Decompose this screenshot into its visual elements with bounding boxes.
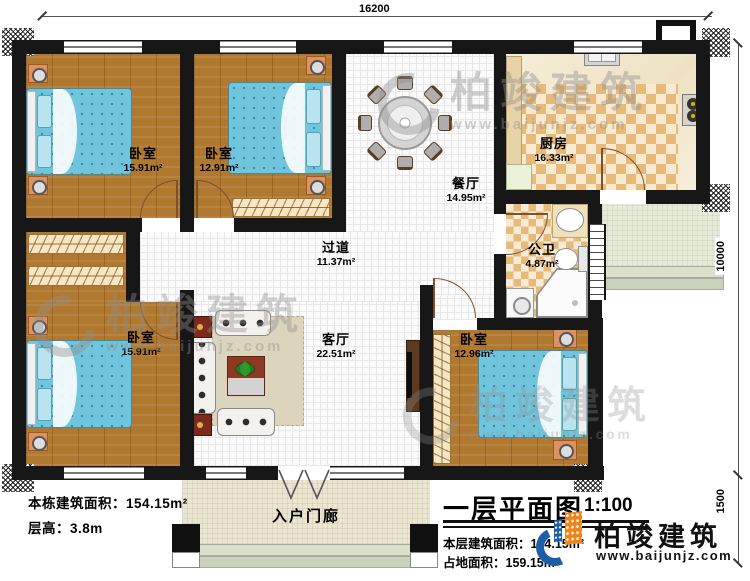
- window: [206, 466, 246, 480]
- wall: [180, 40, 194, 232]
- window: [330, 466, 404, 480]
- top-dimension-label: 16200: [356, 3, 393, 15]
- wardrobe: [28, 234, 124, 254]
- headboard: [578, 353, 587, 435]
- nightstand: [553, 440, 577, 460]
- pillow: [37, 347, 52, 380]
- bathroom-sink: [556, 208, 584, 232]
- nightstand: [306, 176, 326, 195]
- wall: [126, 232, 140, 302]
- tv-icon: [407, 352, 412, 398]
- right-lower-dimension-line: [738, 476, 739, 564]
- porch-column: [172, 524, 200, 552]
- pillow: [37, 388, 52, 421]
- side-porch-step: [602, 278, 724, 290]
- lamp-icon: [197, 324, 203, 330]
- lamp-icon: [559, 332, 574, 347]
- lamp-icon: [32, 436, 47, 451]
- table-center: [400, 118, 411, 129]
- chair: [438, 115, 452, 131]
- lamp-icon: [310, 60, 325, 75]
- pillow: [562, 398, 577, 431]
- nightstand: [553, 328, 577, 348]
- wall: [588, 318, 603, 480]
- nightstand: [28, 432, 48, 451]
- floor-plan-page: 16200 10000 1500: [0, 0, 750, 581]
- wall: [332, 40, 346, 232]
- wall: [12, 466, 64, 480]
- bed: [478, 350, 588, 438]
- lamp-icon: [559, 444, 574, 459]
- headboard: [27, 91, 36, 172]
- top-dimension-line: [42, 16, 712, 17]
- blanket-fold: [281, 83, 305, 173]
- wall: [234, 218, 346, 232]
- wall: [404, 466, 604, 480]
- wall: [420, 285, 433, 480]
- building-area-line: 本栋建筑面积：154.15m²: [28, 492, 188, 512]
- washer-drum-icon: [513, 297, 531, 315]
- washing-machine: [506, 288, 534, 318]
- brand-logo-icon: [536, 512, 588, 566]
- headboard: [27, 343, 36, 425]
- window: [64, 466, 144, 480]
- room-label-dining: 餐厅 14.95m²: [421, 177, 511, 204]
- wall: [246, 466, 278, 480]
- dining-table: [378, 96, 432, 150]
- logo-building-orange: [565, 511, 582, 545]
- room-label-bathroom: 公卫 4.87m²: [497, 243, 587, 270]
- room-label-bedroom-br: 卧室 12.96m²: [429, 333, 519, 360]
- wardrobe: [28, 266, 124, 286]
- right-lower-dimension-label: 1500: [715, 486, 727, 516]
- room-label-living: 客厅 22.51m²: [291, 333, 381, 360]
- window: [64, 40, 142, 54]
- sofa: [215, 310, 271, 336]
- entry-step: [188, 544, 422, 556]
- blanket-fold: [537, 351, 561, 437]
- nightstand: [28, 316, 48, 335]
- floor-height-line: 层高：3.8m: [28, 517, 103, 537]
- wardrobe: [232, 198, 330, 217]
- wall: [12, 218, 142, 232]
- window: [384, 40, 452, 54]
- wall: [144, 466, 206, 480]
- lamp-icon: [32, 68, 47, 83]
- wall: [588, 300, 602, 318]
- room-label-bedroom-tm: 卧室 12.91m²: [174, 147, 264, 174]
- logo-building-blue: [554, 520, 562, 543]
- wall: [12, 40, 26, 480]
- headboard: [322, 85, 331, 171]
- chair: [397, 76, 413, 90]
- sofa: [217, 408, 275, 436]
- lamp-icon: [310, 180, 325, 195]
- right-dimension-line: [738, 44, 739, 476]
- chair: [358, 115, 372, 131]
- window: [220, 40, 296, 54]
- nightstand: [306, 56, 326, 75]
- chair: [397, 156, 413, 170]
- bathroom-window: [588, 224, 606, 300]
- entry-double-door: [276, 468, 332, 502]
- side-porch: [602, 204, 720, 266]
- nightstand: [28, 176, 48, 195]
- room-label-kitchen: 厨房 16.33m²: [509, 137, 599, 164]
- blanket-fold: [53, 341, 77, 427]
- plan-scale: 1:100: [584, 495, 633, 517]
- pillow: [562, 357, 577, 390]
- pillow: [37, 135, 52, 168]
- pillow: [306, 89, 321, 123]
- lamp-icon: [197, 422, 203, 428]
- drain-icon: [572, 300, 578, 306]
- lamp-icon: [32, 320, 47, 335]
- wall: [696, 40, 710, 204]
- wall: [477, 318, 602, 330]
- pillow: [37, 95, 52, 128]
- side-porch-step: [602, 266, 724, 278]
- entry-step: [194, 556, 416, 568]
- room-label-porch: 入户门廊: [272, 505, 340, 526]
- brand-website: www.baijunjz.com: [596, 548, 732, 563]
- pillow: [306, 132, 321, 166]
- wall: [646, 190, 710, 204]
- wall: [452, 40, 574, 54]
- wall: [180, 290, 194, 466]
- porch-column: [410, 524, 438, 552]
- window: [574, 40, 642, 54]
- nightstand: [28, 64, 48, 83]
- wall: [588, 204, 602, 224]
- blanket-fold: [53, 89, 77, 174]
- lamp-icon: [32, 180, 47, 195]
- right-dimension-label: 10000: [715, 238, 727, 275]
- room-label-corridor: 过道 11.37m²: [291, 241, 381, 268]
- porch-column-base: [172, 552, 200, 568]
- room-label-bedroom-bl: 卧室 15.91m²: [96, 331, 186, 358]
- porch-column-base: [410, 552, 438, 568]
